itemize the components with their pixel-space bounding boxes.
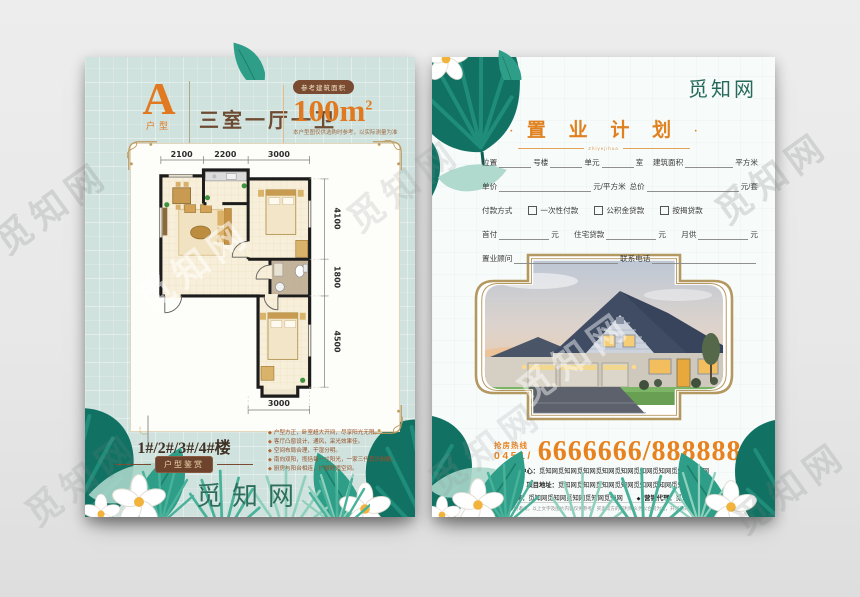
form-row-payment: 付款方式 一次性付款 公积金贷款 按揭贷款 xyxy=(482,205,758,216)
blank-line xyxy=(514,255,618,264)
info-line: ◆ 项目地址：觅知网觅知网觅知网觅知网觅知网觅知网觅知网 xyxy=(432,480,775,489)
title-underline: Zhiyejihua xyxy=(518,146,690,151)
blank-line xyxy=(652,255,756,264)
feature-text: 南向双阳，揽括每一寸阳光，一家三代其乐融融。 xyxy=(274,456,397,465)
field-label: 联系电话 xyxy=(620,253,650,264)
field-label: 首付 xyxy=(482,229,497,240)
info-value: 觅知网觅知网觅知网觅知网觅知网觅知网觅知网 xyxy=(558,482,690,489)
info-label: 售楼中心： xyxy=(508,468,539,475)
diamond-bullet-icon: ◆ xyxy=(519,483,523,489)
feature-item: ◆空间布局合理，干湿分明。 xyxy=(268,447,402,456)
blank-line xyxy=(602,159,634,168)
field-label: 建筑面积 xyxy=(653,157,683,168)
feature-item: ◆厨房与阳台相连，扩展舒适空间。 xyxy=(268,465,402,474)
hotline-number: 6666666/888888 xyxy=(538,438,742,466)
dim-bottom: 3000 xyxy=(268,399,291,408)
field-label: 付款方式 xyxy=(482,205,512,216)
field-label: 元 xyxy=(658,229,666,240)
appreciation-badge-row: 户型鉴赏 xyxy=(115,456,253,473)
field-label: 元 xyxy=(551,229,559,240)
building-numbers: 1#/2#/3#/4#楼 xyxy=(105,434,263,458)
feature-item: ◆客厅凸窗设计，通风，采光效果佳。 xyxy=(268,438,402,447)
header-divider xyxy=(189,81,190,143)
info-value: 觅知网觅知网 xyxy=(676,495,714,502)
field-label: 元/平方米 xyxy=(593,181,625,192)
design-canvas: A 户型 三室一厅一卫 参考建筑面积 100m2 本户型图仅供选购时参考，以实际… xyxy=(0,0,860,597)
diamond-bullet-icon: ◆ xyxy=(268,465,272,474)
info-segment: ◆ 营销代理：觅知网觅知网 xyxy=(635,495,714,502)
info-segment: ◆ 开发商：觅知网觅知网觅知网觅知网觅知网 xyxy=(494,495,623,502)
field-label: 置业顾问 xyxy=(482,253,512,264)
appreciation-badge: 户型鉴赏 xyxy=(155,456,213,473)
floor-plan-panel: 2100 2200 3000 4100 1800 4500 3000 xyxy=(130,143,400,432)
field-label: 月供 xyxy=(681,229,696,240)
title-dot: · xyxy=(694,125,698,137)
info-line: ◆ 售楼中心：觅知网觅知网觅知网觅知网觅知网觅知网觅知网觅知网觅知网 xyxy=(432,466,775,475)
field-label: 元 xyxy=(750,229,758,240)
option-label: 一次性付款 xyxy=(540,205,578,216)
diamond-bullet-icon: ◆ xyxy=(268,447,272,456)
blank-line xyxy=(606,231,656,240)
diamond-bullet-icon: ◆ xyxy=(268,438,272,447)
field-label: 住宅贷款 xyxy=(574,229,604,240)
purchase-plan-form: 位置 号楼 单元 室 建筑面积 平方米 单价 元/平方米 总价 元/套 付款方式… xyxy=(482,157,758,277)
field-label: 元/套 xyxy=(741,181,758,192)
dim-right-2: 1800 xyxy=(332,266,341,289)
area-number: 100m xyxy=(293,93,365,128)
field-label: 号楼 xyxy=(533,157,548,168)
unit-type-letter: A xyxy=(135,77,183,121)
option-label: 公积金贷款 xyxy=(606,205,644,216)
field-label: 室 xyxy=(636,157,644,168)
field-label: 平方米 xyxy=(735,157,758,168)
form-row-consultant: 置业顾问 联系电话 xyxy=(482,253,758,264)
blank-line xyxy=(647,183,739,192)
page-title: · 置 业 计 划 · xyxy=(432,115,775,142)
title-subtext: Zhiyejihua xyxy=(588,146,619,151)
option-label: 按揭贷款 xyxy=(672,205,702,216)
payment-option: 公积金贷款 xyxy=(594,205,644,216)
field-label: 单元 xyxy=(584,157,599,168)
info-value: 觅知网觅知网觅知网觅知网觅知网觅知网觅知网觅知网觅知网 xyxy=(539,468,709,475)
hotline-label-stack: 抢房热线 0451/ xyxy=(494,442,533,463)
title-text: 置 业 计 划 xyxy=(527,120,680,141)
blank-line xyxy=(698,231,748,240)
area-block: 参考建筑面积 100m2 本户型图仅供选购时参考，以实际测量为准 xyxy=(293,77,415,136)
area-value: 100m2 xyxy=(293,95,415,127)
field-label: 总价 xyxy=(630,181,645,192)
feature-text: 厨房与阳台相连，扩展舒适空间。 xyxy=(274,465,358,474)
payment-option: 一次性付款 xyxy=(528,205,578,216)
front-header: A 户型 三室一厅一卫 参考建筑面积 100m2 本户型图仅供选购时参考，以实际… xyxy=(125,77,405,157)
feature-text: 空间布局合理，干湿分明。 xyxy=(274,447,341,456)
flyer-front-page: A 户型 三室一厅一卫 参考建筑面积 100m2 本户型图仅供选购时参考，以实际… xyxy=(85,57,415,517)
feature-text: 户型方正，卧室超大开间，尽享阳光无限。 xyxy=(274,429,380,438)
info-label: 项目地址： xyxy=(526,482,557,489)
disclaimer-text: 本广告不作为要约邀请，以上文字及图片内容仅供参考，买卖双方的权利和义务以合同为准… xyxy=(464,502,743,512)
dim-right-3: 4500 xyxy=(332,331,341,354)
floor-plan-drawing: 2100 2200 3000 4100 1800 4500 3000 xyxy=(141,146,389,428)
info-label: 营销代理： xyxy=(644,495,675,502)
blank-line xyxy=(499,183,591,192)
brand-logo: 觅知网 xyxy=(688,73,757,102)
hotline-label: 抢房热线 xyxy=(494,442,533,451)
blank-line xyxy=(499,231,549,240)
flyer-back-page: 觅知网 · 置 业 计 划 · Zhiyejihua 位置 号楼 单元 室 建筑… xyxy=(432,57,775,517)
brand-logo: 觅知网 xyxy=(85,476,415,513)
feature-text: 客厅凸窗设计，通风，采光效果佳。 xyxy=(274,438,364,447)
checkbox-icon xyxy=(660,206,669,215)
checkbox-icon xyxy=(528,206,537,215)
title-dot: · xyxy=(509,125,513,137)
area-note: 本户型图仅供选购时参考，以实际测量为准 xyxy=(293,128,415,136)
form-row-price: 单价 元/平方米 总价 元/套 xyxy=(482,181,758,192)
hotline-area-code: 0451/ xyxy=(494,450,533,462)
info-label: 开发商： xyxy=(503,495,528,502)
blank-line xyxy=(550,159,582,168)
field-label: 位置 xyxy=(482,157,497,168)
form-row-location: 位置 号楼 单元 室 建筑面积 平方米 xyxy=(482,157,758,168)
badge-line xyxy=(115,464,151,465)
area-superscript: 2 xyxy=(365,99,372,114)
diamond-bullet-icon: ◆ xyxy=(268,429,272,438)
title-line xyxy=(623,148,690,149)
diamond-bullet-icon: ◆ xyxy=(268,456,272,465)
checkbox-icon xyxy=(594,206,603,215)
dim-right-1: 4100 xyxy=(332,208,341,231)
badge-line xyxy=(217,464,253,465)
title-line xyxy=(518,148,585,149)
payment-option: 按揭贷款 xyxy=(660,205,702,216)
form-row-downpayment: 首付 元 住宅贷款 元 月供 元 xyxy=(482,229,758,240)
blank-line xyxy=(499,159,531,168)
field-label: 单价 xyxy=(482,181,497,192)
blank-line xyxy=(685,159,733,168)
feature-item: ◆户型方正，卧室超大开间，尽享阳光无限。 xyxy=(268,429,402,438)
header-divider-2 xyxy=(283,85,284,143)
hotline-block: 抢房热线 0451/ 6666666/888888 xyxy=(494,438,742,466)
feature-list: ◆户型方正，卧室超大开间，尽享阳光无限。 ◆客厅凸窗设计，通风，采光效果佳。 ◆… xyxy=(268,429,402,474)
info-lines: ◆ 售楼中心：觅知网觅知网觅知网觅知网觅知网觅知网觅知网觅知网觅知网 ◆ 项目地… xyxy=(432,466,775,507)
unit-type-block: A 户型 xyxy=(135,77,183,132)
area-reference-badge: 参考建筑面积 xyxy=(293,80,354,94)
info-line: ◆ 开发商：觅知网觅知网觅知网觅知网觅知网 ◆ 营销代理：觅知网觅知网 xyxy=(432,493,775,502)
feature-item: ◆南向双阳，揽括每一寸阳光，一家三代其乐融融。 xyxy=(268,456,402,465)
info-value: 觅知网觅知网觅知网觅知网觅知网 xyxy=(528,495,622,502)
diamond-bullet-icon: ◆ xyxy=(500,469,504,475)
